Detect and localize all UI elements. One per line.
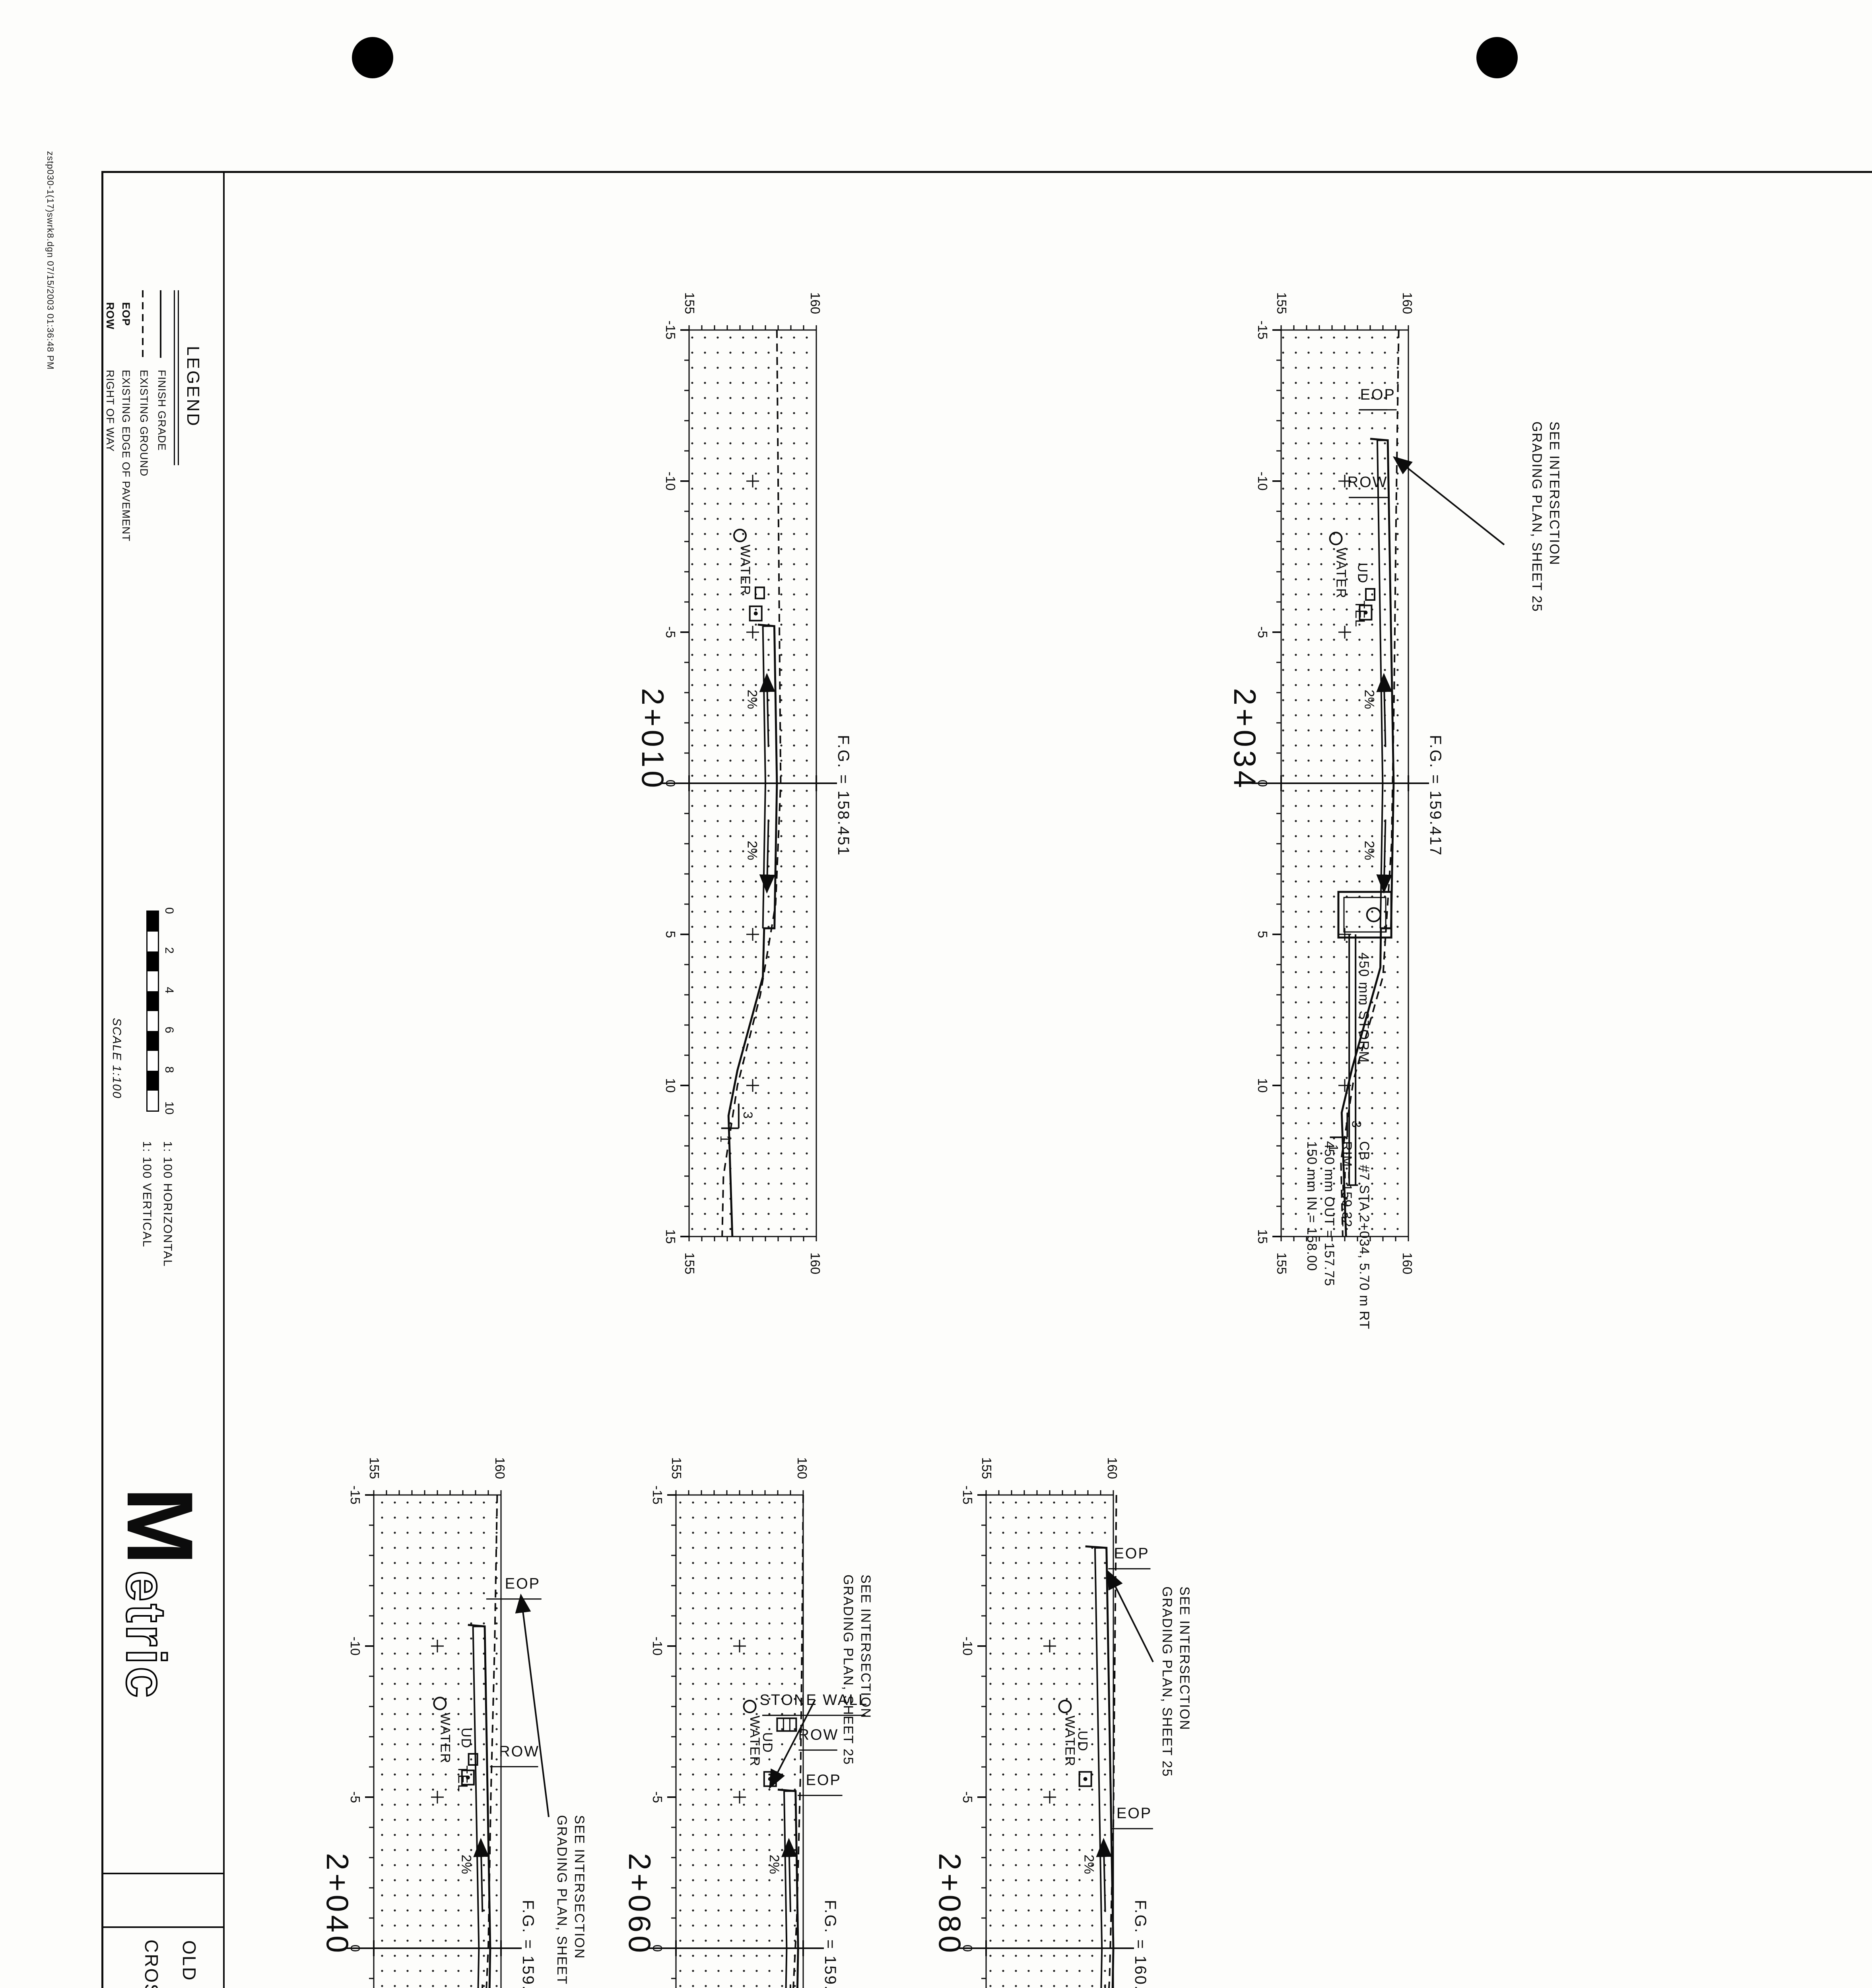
elev-label-155: 155 (682, 1252, 697, 1274)
offset-label: 5 (663, 931, 678, 938)
section-panel-2+010: -15-10-50510151551601551602%2%31WATERF.G… (584, 290, 898, 1396)
callout-row: ROW (499, 1743, 540, 1760)
offset-label: 10 (663, 1078, 678, 1093)
scale-number: 8 (162, 1066, 176, 1073)
sheet-type: CROSS SECTIONS (141, 1939, 162, 1988)
offset-label: -5 (663, 626, 678, 638)
elev-label-160: 160 (808, 292, 823, 314)
offset-label: -10 (663, 472, 678, 491)
offset-label: -15 (650, 1485, 665, 1505)
drawing-sheet: LEGEND FINISH GRADE EXISTING GROUND EOP … (0, 0, 1872, 1988)
legend-rule (174, 290, 175, 465)
scale-block: 0 2 4 6 8 10 1: 100 HORIZONTAL 1: 100 VE… (103, 903, 190, 1340)
station-label: 2+034 (1227, 688, 1262, 791)
road-name: OLD STAGE ROAD (179, 1940, 200, 1988)
see-intersection-note: SEE INTERSECTION (1177, 1586, 1192, 1731)
offset-label: -10 (348, 1637, 363, 1656)
callout-ud: UD (1355, 563, 1370, 584)
finish-grade-elevation: F.G. = 159.803 (821, 1900, 839, 1988)
offset-label: -10 (960, 1637, 975, 1656)
plot-stamp: zstp030-1(17)swrk8.dgn 07/15/2003 01:36:… (45, 151, 56, 370)
callout-water: WATER (437, 1712, 452, 1764)
strip-divider (223, 171, 225, 1988)
finish-grade-elevation: F.G. = 160.003 (1132, 1900, 1149, 1988)
elev-label-160: 160 (808, 1252, 823, 1274)
plot-grid (986, 1495, 1113, 1988)
legend: LEGEND FINISH GRADE EXISTING GROUND EOP … (103, 290, 206, 477)
metric-logo-m: M (106, 1487, 214, 1563)
elev-label-155: 155 (367, 1457, 382, 1479)
see-intersection-note: GRADING PLAN, SHEET 25 (841, 1574, 856, 1765)
legend-existing-ground-line (142, 290, 144, 358)
offset-label: -10 (650, 1637, 665, 1656)
see-intersection-note: SEE INTERSECTION (858, 1574, 873, 1719)
legend-item-label: RIGHT OF WAY (104, 370, 116, 452)
elev-label-155: 155 (1274, 292, 1289, 314)
see-intersection-note: SEE INTERSECTION (1547, 421, 1562, 566)
section-panel-2+034: -15-10-5051015155160155160450 mm STORM2%… (1212, 290, 1578, 1396)
finish-grade-elevation: F.G. = 158.451 (835, 735, 852, 856)
section-panel-2+040: -15-10-5051015155160155160450 mm STORM2%… (258, 1455, 588, 1988)
underdrain-dot (1084, 1777, 1087, 1781)
callout-eop: EOP (505, 1576, 540, 1592)
scale-ruler (146, 911, 159, 1112)
offset-label: 15 (1255, 1229, 1270, 1244)
border-left (102, 171, 1872, 173)
elev-label-160: 160 (493, 1457, 507, 1479)
scale-number: 2 (162, 947, 176, 954)
offset-label: -5 (960, 1791, 975, 1803)
callout-row: ROW (1348, 474, 1388, 491)
scale-number: 0 (162, 907, 176, 914)
elev-label-160: 160 (1400, 1252, 1415, 1274)
callout-row: ROW (798, 1727, 839, 1743)
legend-title: LEGEND (183, 346, 203, 427)
underdrain-dot (754, 612, 758, 615)
slope-label: 2% (745, 689, 760, 709)
station-label: 2+040 (320, 1853, 355, 1956)
storm-pipe-label: 450 mm STORM (1356, 953, 1371, 1063)
offset-label: 5 (1255, 931, 1270, 938)
see-intersection-note: SEE INTERSECTION (572, 1815, 587, 1959)
offset-label: -5 (650, 1791, 665, 1803)
callout-water: WATER (1334, 547, 1349, 599)
elev-label-160: 160 (1400, 292, 1415, 314)
elev-label-155: 155 (682, 292, 697, 314)
plot-grid (676, 1495, 803, 1988)
finish-grade-elevation: F.G. = 159.576 (519, 1900, 537, 1988)
elev-label-160: 160 (1105, 1457, 1120, 1479)
metric-logo-etric: etric (114, 1571, 178, 1700)
see-note-arrow (521, 1595, 549, 1817)
slope-label: 2% (767, 1854, 782, 1874)
callout-ud: UD (1075, 1731, 1090, 1752)
scale-horizontal-label: 1: 100 HORIZONTAL (161, 1141, 174, 1267)
callout-eop: EOP (1360, 386, 1396, 403)
see-intersection-note: GRADING PLAN, SHEET 25 (1159, 1586, 1175, 1777)
catch-basin-note-line: 450 mm OUT = 157.75 (1322, 1141, 1337, 1286)
scale-caption: SCALE 1:100 (110, 1018, 123, 1099)
slope-ratio-3: 3 (1349, 1120, 1363, 1128)
slope-ratio-1: 1 (718, 1136, 732, 1143)
offset-label: 15 (663, 1229, 678, 1244)
offset-label: -5 (348, 1791, 363, 1803)
station-label: 2+060 (622, 1853, 657, 1956)
legend-item-label: EXISTING EDGE OF PAVEMENT (120, 370, 132, 542)
callout-tel: TEL (1352, 600, 1367, 627)
slope-label: 2% (1361, 841, 1377, 860)
scale-vertical-label: 1: 100 VERTICAL (140, 1141, 153, 1248)
callout-eop: EOP (806, 1772, 841, 1789)
scale-number: 6 (162, 1027, 176, 1033)
station-label: 2+010 (635, 688, 670, 791)
callout-water: WATER (738, 545, 753, 596)
catch-basin-note-line: RIM = 159.32 (1339, 1141, 1354, 1227)
see-intersection-note: GRADING PLAN, SHEET 25 (554, 1815, 569, 1988)
offset-label: -10 (1255, 472, 1270, 491)
catch-basin-note-line: CB #7 STA 2+034, 5.70 m RT (1357, 1141, 1372, 1330)
slope-label: 2% (745, 841, 760, 860)
offset-label: -15 (663, 320, 678, 340)
slope-label: 2% (458, 1854, 474, 1874)
callout-eop: EOP (1114, 1545, 1149, 1562)
tb-rule (101, 1926, 225, 1928)
metric-logo: M etric (103, 1487, 210, 1765)
callout-ud: UD (458, 1728, 474, 1749)
slope-label: 2% (1082, 1854, 1097, 1874)
see-note-arrow (1394, 457, 1504, 545)
underdrain-dot (768, 1777, 772, 1781)
section-panel-2+080: -15-10-5051015155160155160450 mm STORM2%… (878, 1455, 1196, 1988)
offset-label: 10 (1255, 1078, 1270, 1093)
legend-rule (178, 290, 179, 465)
scale-number: 4 (162, 987, 176, 994)
offset-label: -15 (960, 1485, 975, 1505)
legend-finish-grade-line (160, 290, 161, 358)
tb-rule (101, 1873, 225, 1874)
offset-label: -5 (1255, 626, 1270, 638)
elev-label-155: 155 (1274, 1252, 1289, 1274)
slope-ratio-3: 3 (741, 1112, 755, 1119)
offset-label: -15 (1255, 320, 1270, 340)
elev-label-160: 160 (795, 1457, 810, 1479)
legend-key-eop: EOP (120, 302, 132, 326)
legend-item-label: EXISTING GROUND (138, 370, 150, 477)
callout-ud: UD (760, 1732, 775, 1753)
station-label: 2+080 (932, 1853, 967, 1956)
legend-key-row: ROW (104, 302, 116, 330)
elev-label-155: 155 (979, 1457, 994, 1479)
offset-label: -15 (348, 1485, 363, 1505)
section-panel-2+060: -15-10-5051015155160155160450 mm STORM2%… (568, 1455, 886, 1988)
legend-item-label: FINISH GRADE (155, 370, 168, 451)
slope-label: 2% (1361, 689, 1377, 709)
callout-tel: TEL (455, 1765, 470, 1792)
elev-label-155: 155 (669, 1457, 684, 1479)
finish-grade-elevation: F.G. = 159.417 (1427, 735, 1444, 856)
scale-number: 10 (162, 1101, 176, 1114)
scanned-sheet: { "legend": { "title": "LEGEND", "items"… (0, 0, 1872, 1988)
catch-basin-note-line: 150 mm IN = 158.00 (1304, 1141, 1319, 1271)
see-intersection-note: GRADING PLAN, SHEET 25 (1529, 421, 1544, 612)
callout-eop: EOP (1117, 1805, 1152, 1822)
